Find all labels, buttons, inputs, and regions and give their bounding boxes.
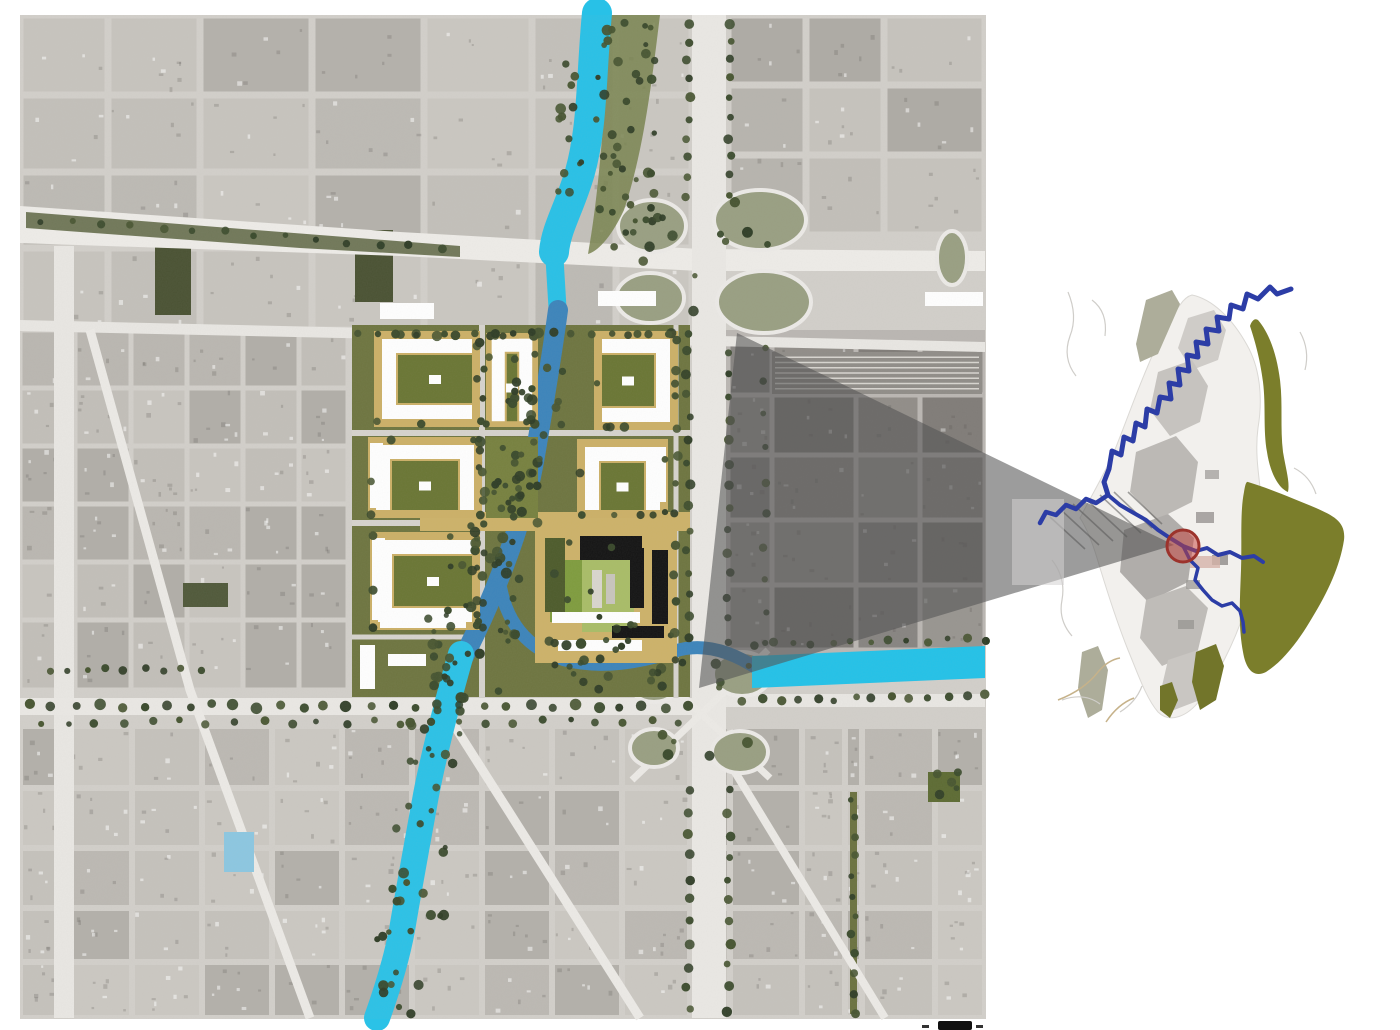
urban-core-patch xyxy=(1178,620,1194,629)
site-location-figure xyxy=(0,0,1400,1030)
site-location-marker xyxy=(1167,530,1199,562)
hillside-strip xyxy=(1078,646,1108,718)
creek xyxy=(1106,698,1134,722)
urban-design-figure-page xyxy=(0,0,1400,1030)
cropped-logo-icon xyxy=(938,1021,972,1030)
rural-road xyxy=(1092,300,1105,336)
green-belt xyxy=(1240,482,1344,674)
urban-core-patch xyxy=(1205,470,1219,479)
urban-core-patch xyxy=(1196,512,1214,523)
rural-road xyxy=(1300,332,1307,370)
rural-road xyxy=(1067,292,1076,376)
rural-road xyxy=(1294,468,1316,494)
